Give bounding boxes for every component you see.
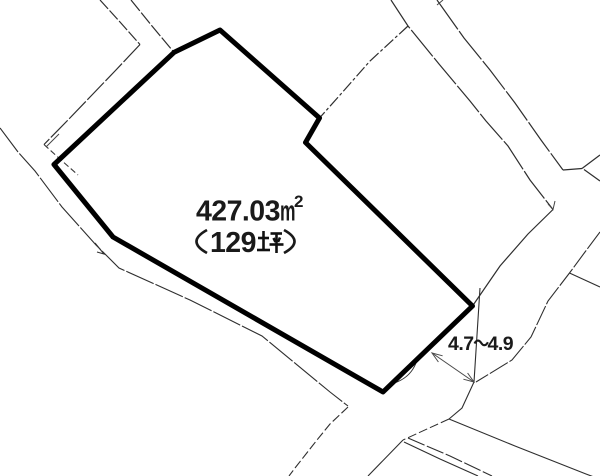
svg-text:4.7: 4.7 xyxy=(448,333,474,355)
svg-text:427.03: 427.03 xyxy=(196,195,280,227)
svg-text:129: 129 xyxy=(210,227,256,259)
svg-text:2: 2 xyxy=(294,192,303,211)
svg-text:4.9: 4.9 xyxy=(488,333,514,355)
